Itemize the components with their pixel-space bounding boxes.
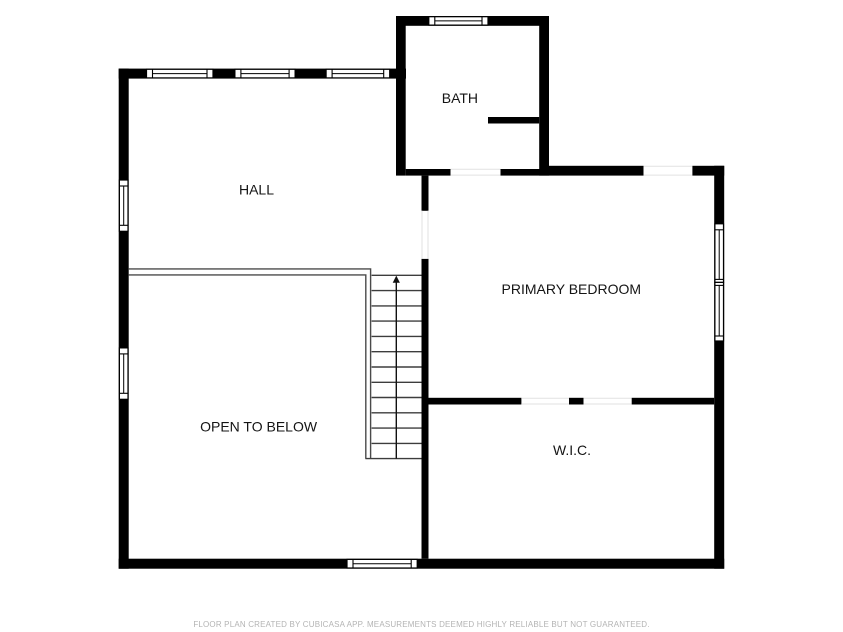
svg-text:W.I.C.: W.I.C. bbox=[553, 442, 591, 458]
svg-text:OPEN TO BELOW: OPEN TO BELOW bbox=[200, 419, 318, 435]
svg-text:HALL: HALL bbox=[239, 181, 274, 197]
svg-text:PRIMARY BEDROOM: PRIMARY BEDROOM bbox=[502, 281, 642, 297]
svg-text:FLOOR PLAN CREATED BY CUBICASA: FLOOR PLAN CREATED BY CUBICASA APP. MEAS… bbox=[193, 620, 649, 629]
svg-text:BATH: BATH bbox=[442, 90, 478, 106]
